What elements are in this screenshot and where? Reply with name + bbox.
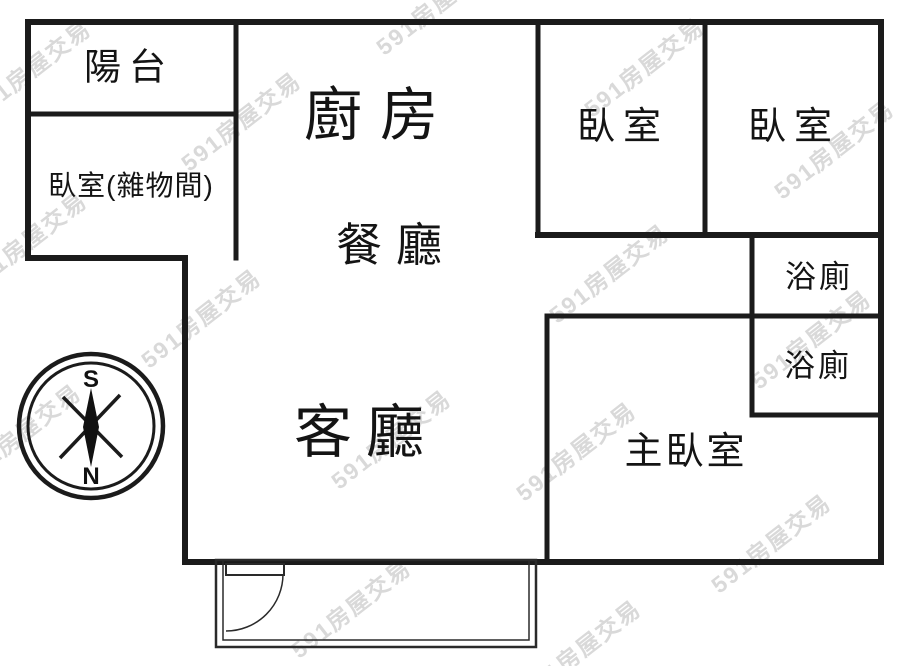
entry-porch xyxy=(216,560,536,647)
room-label-kitchen: 廚房 xyxy=(304,87,456,145)
compass-south-label: S xyxy=(83,366,99,393)
room-label-balcony: 陽台 xyxy=(84,49,174,86)
room-label-bath-top: 浴廁 xyxy=(785,262,853,293)
room-label-master-bedroom: 主臥室 xyxy=(624,433,747,471)
compass-north-label: N xyxy=(82,463,99,490)
compass: S N xyxy=(19,354,163,498)
room-label-bath-bottom: 浴廁 xyxy=(784,351,852,382)
room-label-bedroom-right: 臥室 xyxy=(748,108,840,146)
room-label-bedroom-left: 臥室 xyxy=(577,108,669,146)
door-leaf xyxy=(226,564,284,575)
floor-plan-canvas: 591房屋交易591房屋交易591房屋交易591房屋交易591房屋交易591房屋… xyxy=(0,0,900,666)
room-label-living: 客廳 xyxy=(294,404,438,462)
door-swing-arc xyxy=(226,574,283,631)
room-label-storage-bedroom: 臥室(雜物間) xyxy=(48,172,214,200)
room-label-dining: 餐廳 xyxy=(336,223,456,269)
compass-needle xyxy=(83,388,99,467)
